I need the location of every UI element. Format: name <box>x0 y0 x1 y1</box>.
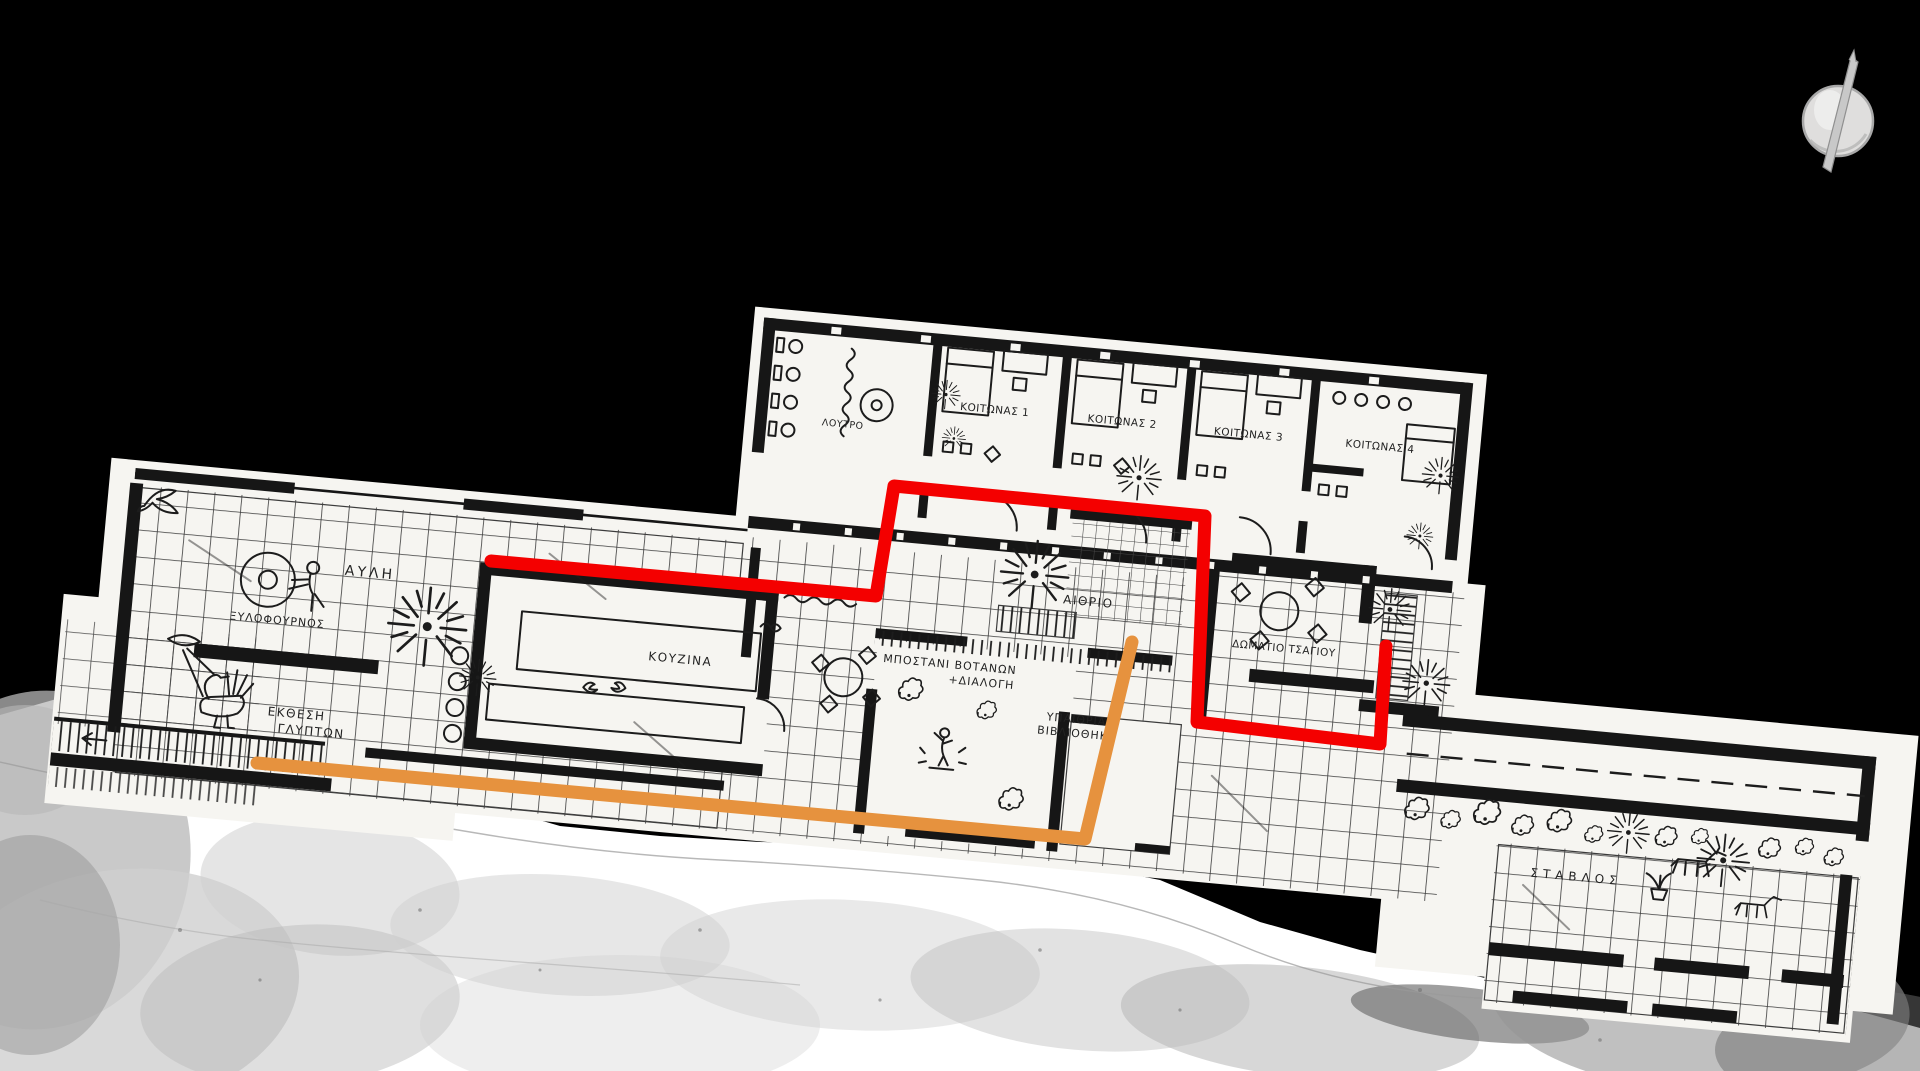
atrium-trellis <box>1064 519 1191 627</box>
screenshot-stage: ΛΟΥΤΡΟ ΚΟΙΤΩΝΑΣ 1 ΚΟΙΤΩΝΑΣ 2 ΚΟΙΤΩΝΑΣ 3 … <box>0 0 1920 1071</box>
site-plan-canvas: ΛΟΥΤΡΟ ΚΟΙΤΩΝΑΣ 1 ΚΟΙΤΩΝΑΣ 2 ΚΟΙΤΩΝΑΣ 3 … <box>0 0 1920 1071</box>
